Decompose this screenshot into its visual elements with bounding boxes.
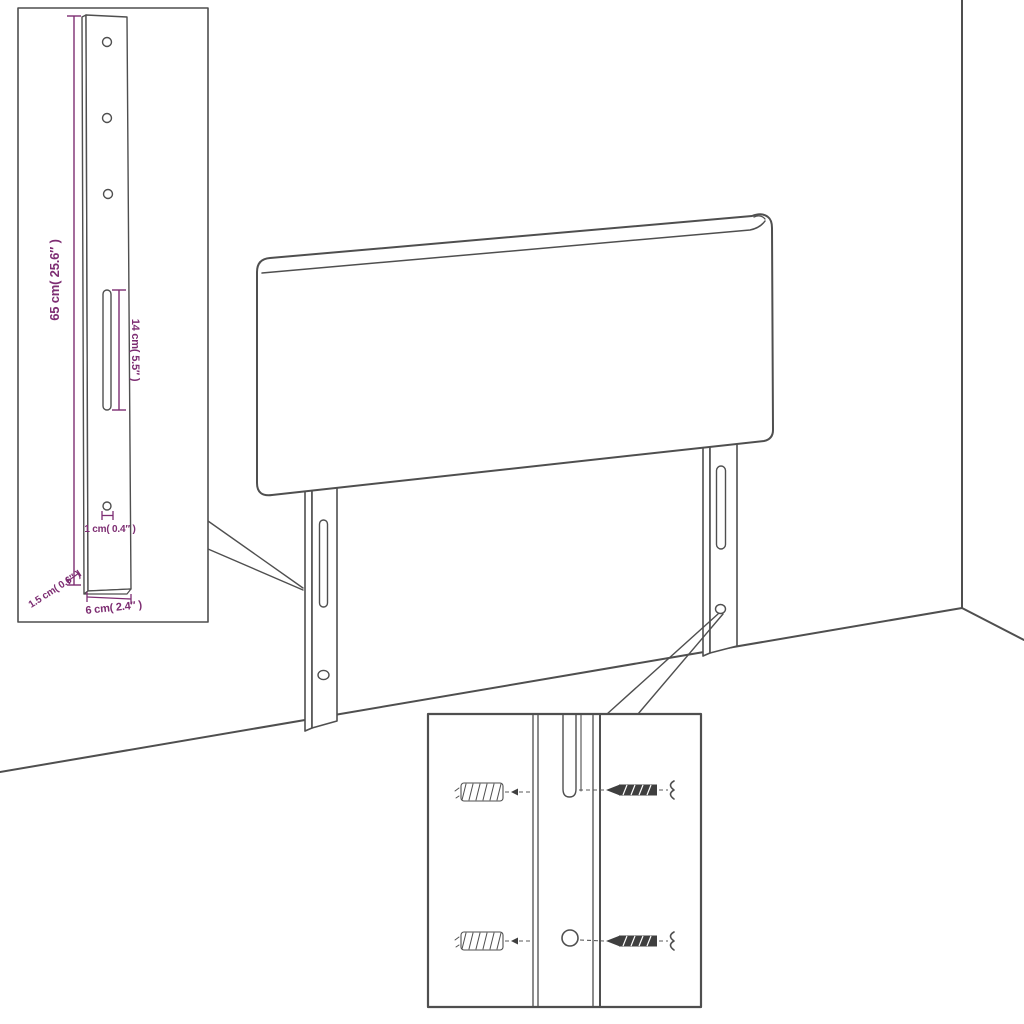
- mounting-detail-inset: [428, 714, 701, 1007]
- headboard-left-leg: [305, 480, 337, 731]
- detail-leg-front-face: [86, 15, 131, 591]
- left-leg-front-face: [312, 480, 337, 728]
- dimension-hole-label: 1 cm( 0.4″ ): [84, 524, 135, 535]
- leg-detail-callout-lines: [208, 521, 303, 590]
- mounting-detail-frame: [428, 714, 701, 1007]
- assembly-diagram: 65 cm( 25.6″ ) 14 cm( 5.5″ ) 1 cm( 0.4″ …: [0, 0, 1024, 1024]
- dimension-slot-label: 14 cm( 5.5″ ): [129, 319, 141, 382]
- left-leg-side-face: [305, 488, 312, 731]
- right-leg-front-face: [710, 432, 737, 653]
- diagram-canvas: 65 cm( 25.6″ ) 14 cm( 5.5″ ) 1 cm( 0.4″ …: [0, 0, 1024, 1024]
- dimension-height-label: 65 cm( 25.6″ ): [47, 239, 62, 320]
- leg-detail-inset: 65 cm( 25.6″ ) 14 cm( 5.5″ ) 1 cm( 0.4″ …: [18, 8, 208, 622]
- headboard-panel: [257, 214, 773, 495]
- headboard-face: [257, 214, 773, 495]
- floor-line-right: [962, 608, 1024, 640]
